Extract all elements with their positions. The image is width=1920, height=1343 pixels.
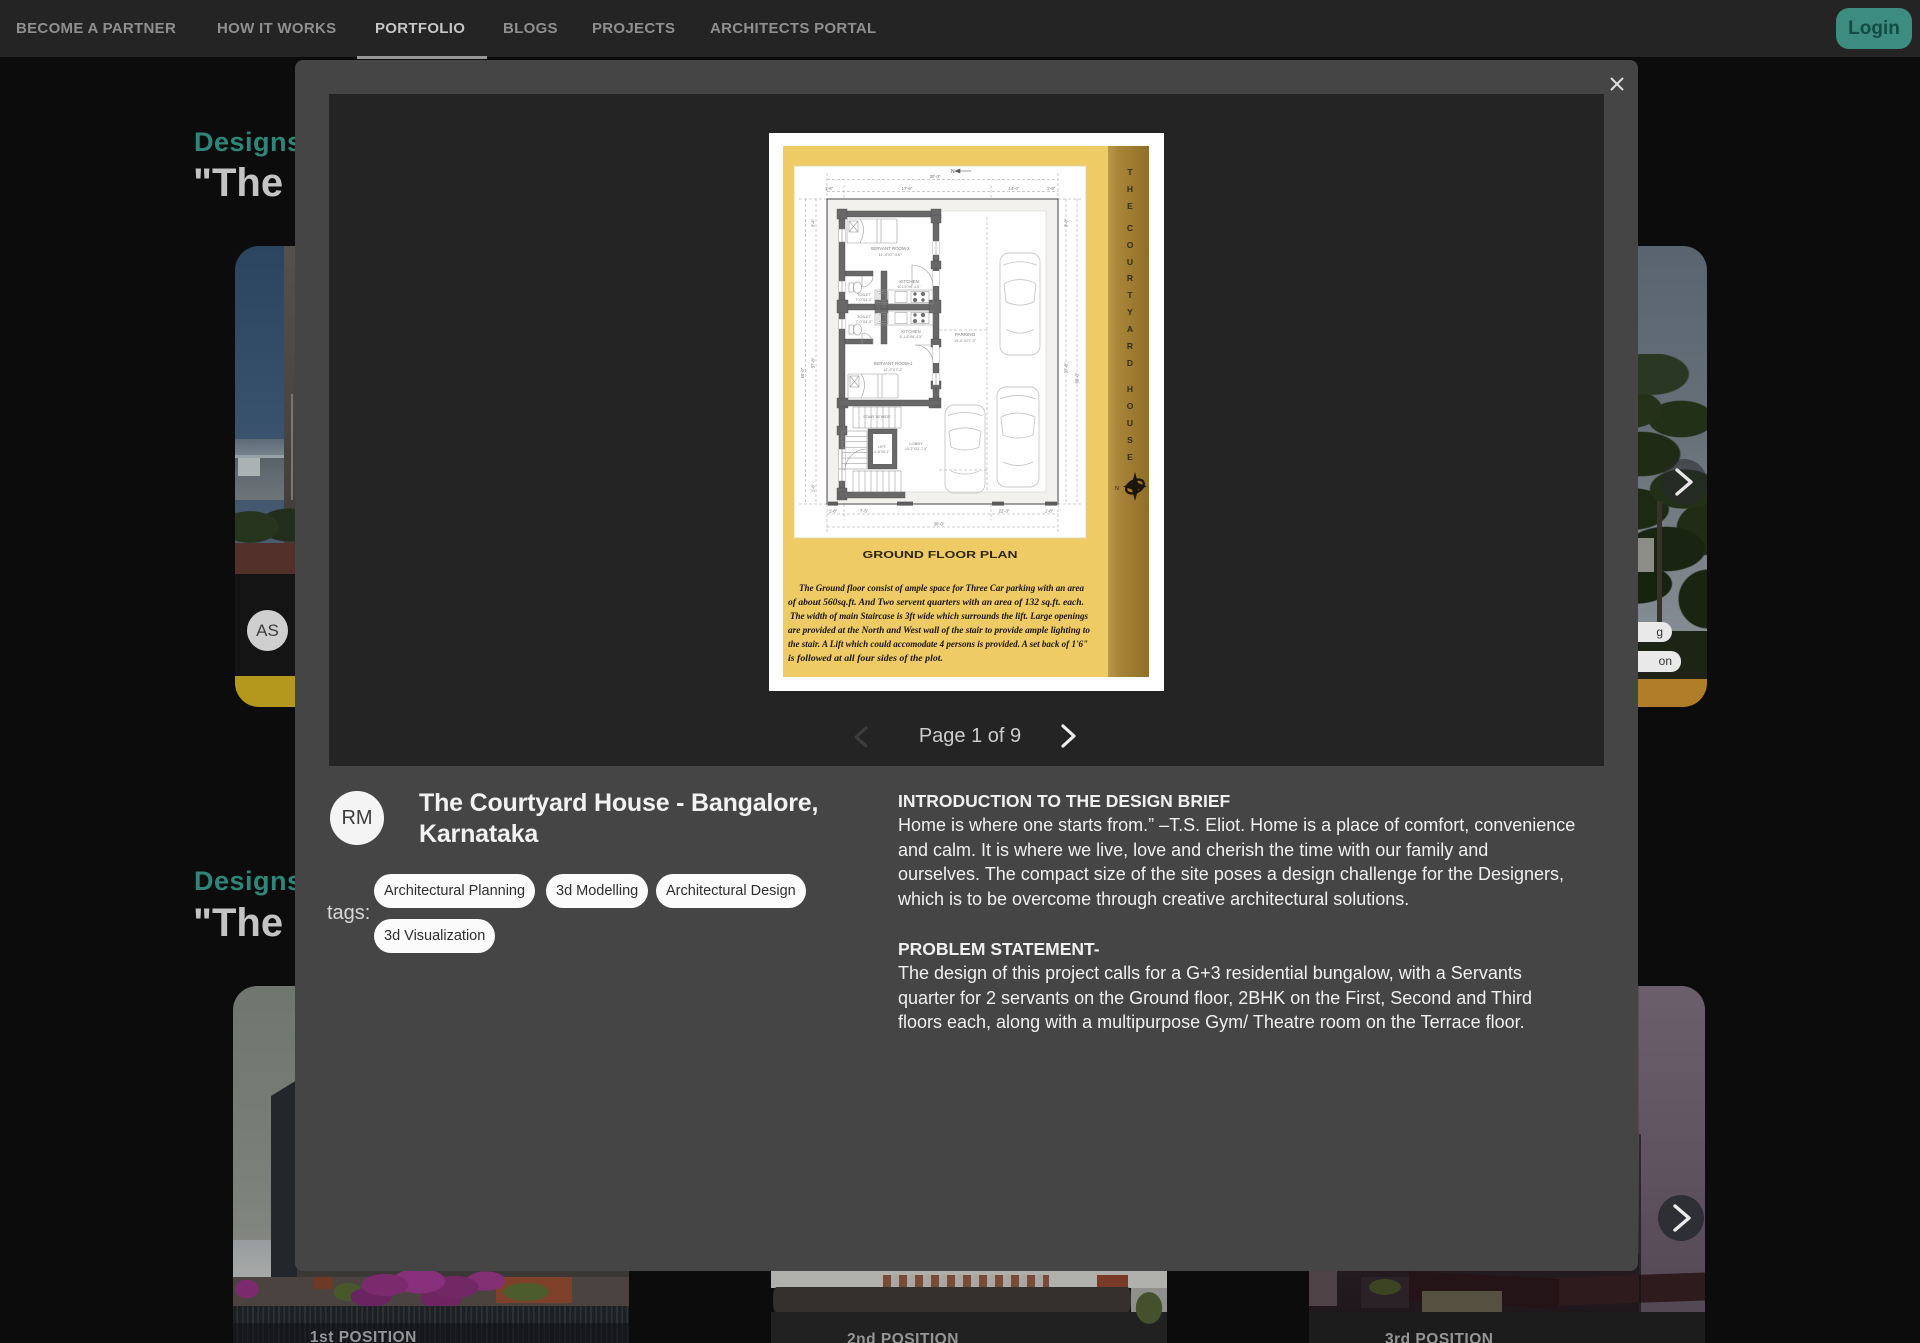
svg-text:STAIR 36"WIDE: STAIR 36"WIDE [863,415,891,419]
svg-text:22'-3": 22'-3" [999,509,1010,514]
svg-text:1'-6": 1'-6" [811,483,816,492]
svg-text:LIFT: LIFT [878,444,887,449]
svg-text:The width of main Staircase is: The width of main Staircase is 3ft wide … [790,611,1088,622]
svg-text:14'-0": 14'-0" [1009,186,1020,191]
svg-text:TOILET: TOILET [857,292,871,297]
svg-text:1'-6": 1'-6" [825,186,834,191]
svg-text:R: R [1127,273,1133,283]
svg-text:S: S [1127,435,1133,445]
svg-text:Y: Y [1127,307,1133,317]
svg-text:30'-0": 30'-0" [930,174,941,179]
svg-text:4'-6"X5'-1": 4'-6"X5'-1" [874,450,891,454]
svg-text:H: H [1127,384,1133,394]
svg-text:GROUND FLOOR PLAN: GROUND FLOOR PLAN [863,549,1018,561]
svg-text:O: O [1127,240,1134,250]
svg-text:11'-4"X7'-4.5": 11'-4"X7'-4.5" [879,253,902,257]
svg-text:6'-1.5"X6'-4.5": 6'-1.5"X6'-4.5" [898,285,921,289]
svg-text:of about 560sq.ft. And Two se: of about 560sq.ft. And Two servent quart… [788,597,1084,608]
svg-text:37'-8": 37'-8" [811,357,816,368]
svg-text:TOILET: TOILET [857,314,871,319]
svg-text:E: E [1127,201,1133,211]
svg-text:KITCHEN: KITCHEN [899,279,918,284]
svg-text:LOBBY: LOBBY [909,441,923,446]
svg-text:7'-0"X4'-0": 7'-0"X4'-0" [856,298,873,302]
svg-text:1'-6": 1'-6" [829,509,838,514]
svg-text:1'-6": 1'-6" [1047,186,1056,191]
svg-text:D: D [1127,358,1133,368]
svg-text:SERVANT ROOM-1: SERVANT ROOM-1 [873,361,913,366]
svg-text:the stair. A Lift which could: the stair. A Lift which could accomodate… [788,639,1088,650]
svg-text:6'-1.5"X6'-4.5": 6'-1.5"X6'-4.5" [900,335,923,339]
svg-text:7'-5": 7'-5" [860,509,869,514]
svg-text:19'-6"X27'-9": 19'-6"X27'-9" [954,339,977,343]
svg-text:30'-0": 30'-0" [934,522,945,527]
svg-text:U: U [1127,418,1133,428]
svg-text:12'-0"X7'-2": 12'-0"X7'-2" [883,368,903,372]
svg-text:O: O [1127,401,1134,411]
svg-text:The Ground floor consist of am: The Ground floor consist of ample space … [799,583,1084,594]
svg-text:U: U [1127,257,1133,267]
svg-text:KITCHEN: KITCHEN [901,329,920,334]
svg-text:A: A [1127,324,1133,334]
svg-text:10'-2"X11'-7.5": 10'-2"X11'-7.5" [905,447,928,451]
svg-text:37'-8": 37'-8" [1064,362,1069,373]
svg-text:R: R [1127,341,1133,351]
svg-text:17'-6": 17'-6" [902,186,913,191]
svg-text:E: E [1127,452,1133,462]
svg-text:60'-0": 60'-0" [1075,372,1080,383]
svg-text:7'-0"X4'-0": 7'-0"X4'-0" [856,320,873,324]
svg-text:N: N [951,169,955,175]
svg-text:SERVANT ROOM-2: SERVANT ROOM-2 [870,246,910,251]
svg-text:N: N [1115,486,1119,492]
svg-text:1'-6": 1'-6" [1045,509,1054,514]
svg-text:PARKING: PARKING [955,332,976,337]
svg-text:H: H [1127,184,1133,194]
svg-text:is followed at all four sides: is followed at all four sides of the plo… [788,653,943,664]
svg-text:T: T [1127,167,1133,177]
svg-text:are provided at the North and: are provided at the North and West wall … [788,625,1090,636]
svg-text:3'-4": 3'-4" [811,218,816,227]
svg-text:3'-0": 3'-0" [1064,218,1069,227]
svg-text:60'-0": 60'-0" [800,367,805,378]
svg-text:C: C [1127,223,1133,233]
svg-text:T: T [1127,290,1133,300]
